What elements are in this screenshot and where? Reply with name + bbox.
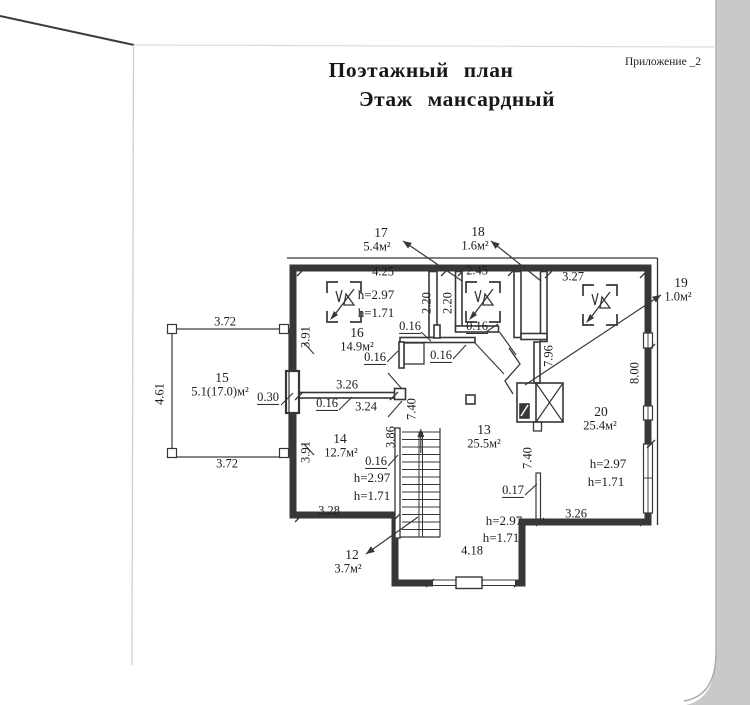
room-15-number: 15 — [215, 371, 229, 385]
dim-4-18: 4.18 — [461, 544, 483, 557]
room-12-number: 12 — [345, 548, 359, 562]
dim-3-24: 3.24 — [355, 400, 377, 413]
room-16-h-ceiling: h=2.97 — [358, 288, 395, 302]
room-17-number: 17 — [374, 226, 388, 240]
room-16-number: 16 — [350, 326, 364, 340]
chimney-block — [517, 383, 563, 431]
dim-3-72-top: 3.72 — [214, 315, 236, 328]
dim-3-91-bottom: 3.91 — [299, 441, 312, 463]
room-20-h-ceiling: h=2.97 — [590, 457, 627, 471]
room-12-area: 3.7м² — [334, 562, 361, 575]
dim-0-16-b: 0.16 — [466, 320, 488, 334]
scanned-floor-plan-page: Поэтажный план Этаж мансардный Приложени… — [0, 0, 750, 705]
dim-2-45: 2.45 — [466, 264, 488, 277]
room-17-area: 5.4м² — [363, 240, 390, 253]
dim-7-40-right: 7.40 — [521, 447, 534, 469]
dim-3-26-mid: 3.26 — [336, 378, 358, 391]
dim-3-27: 3.27 — [562, 270, 584, 283]
dim-3-26-bottom: 3.26 — [565, 507, 587, 520]
room-16-h-knee: h=1.71 — [358, 306, 395, 320]
room-14-h-ceiling: h=2.97 — [354, 471, 391, 485]
dim-0-30: 0.30 — [257, 391, 279, 405]
room-15-area: 5.1(17.0)м² — [191, 385, 248, 398]
dim-0-17: 0.17 — [502, 484, 524, 498]
room-18-area: 1.6м² — [461, 239, 488, 252]
room-14-number: 14 — [333, 432, 347, 446]
dim-3-91-top: 3.91 — [299, 326, 312, 348]
skylight-room16-icon — [327, 282, 361, 322]
dim-2-20-b: 2.20 — [441, 292, 454, 314]
room-13-area: 25.5м² — [467, 437, 501, 450]
room-13-number: 13 — [477, 423, 491, 437]
page-title: Поэтажный план — [329, 58, 514, 83]
dim-0-16-partition: 0.16 — [316, 397, 338, 411]
room-19-number: 19 — [674, 276, 688, 290]
dim-0-16-stair: 0.16 — [365, 455, 387, 469]
room-14-h-knee: h=1.71 — [354, 489, 391, 503]
skylight-room13-icon — [583, 285, 617, 325]
dim-0-16-c: 0.16 — [430, 349, 452, 363]
room-20-number: 20 — [594, 405, 608, 419]
dim-8-00: 8.00 — [628, 362, 641, 384]
room-20-h-knee: h=1.71 — [588, 475, 625, 489]
dim-7-40-center: 7.40 — [405, 398, 418, 420]
room-19-area: 1.0м² — [664, 290, 691, 303]
dim-4-61: 4.61 — [153, 383, 166, 405]
page-subtitle: Этаж мансардный — [359, 87, 555, 112]
dim-0-16-a: 0.16 — [399, 320, 421, 334]
dim-3-72-bottom: 3.72 — [216, 457, 238, 470]
dim-0-16-d: 0.16 — [364, 351, 386, 365]
dim-7-96: 7.96 — [542, 345, 555, 367]
room-20-area: 25.4м² — [583, 419, 617, 432]
room-18-number: 18 — [471, 225, 485, 239]
staircase — [400, 428, 440, 537]
room-13-h-knee: h=1.71 — [483, 531, 520, 545]
annex-note: Приложение _2 — [625, 56, 701, 68]
dim-3-86: 3.86 — [384, 426, 397, 448]
dim-3-28: 3.28 — [318, 504, 340, 517]
skylight-room17-icon — [466, 282, 500, 322]
dim-2-20-a: 2.20 — [420, 292, 433, 314]
room-13-h-ceiling: h=2.97 — [486, 514, 523, 528]
room-14-area: 12.7м² — [324, 446, 358, 459]
dim-4-25: 4.25 — [372, 265, 394, 278]
